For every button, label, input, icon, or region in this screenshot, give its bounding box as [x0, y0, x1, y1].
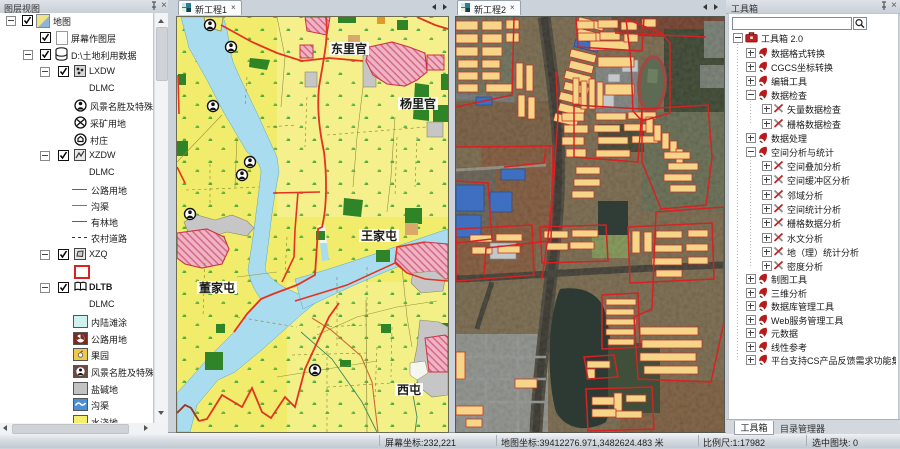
- svg-text:董家屯: 董家屯: [199, 280, 235, 295]
- svg-text:王家屯: 王家屯: [361, 228, 397, 243]
- svg-text:杨里官: 杨里官: [400, 96, 436, 111]
- svg-text:西屯: 西屯: [397, 382, 421, 397]
- svg-text:东里官: 东里官: [331, 41, 367, 56]
